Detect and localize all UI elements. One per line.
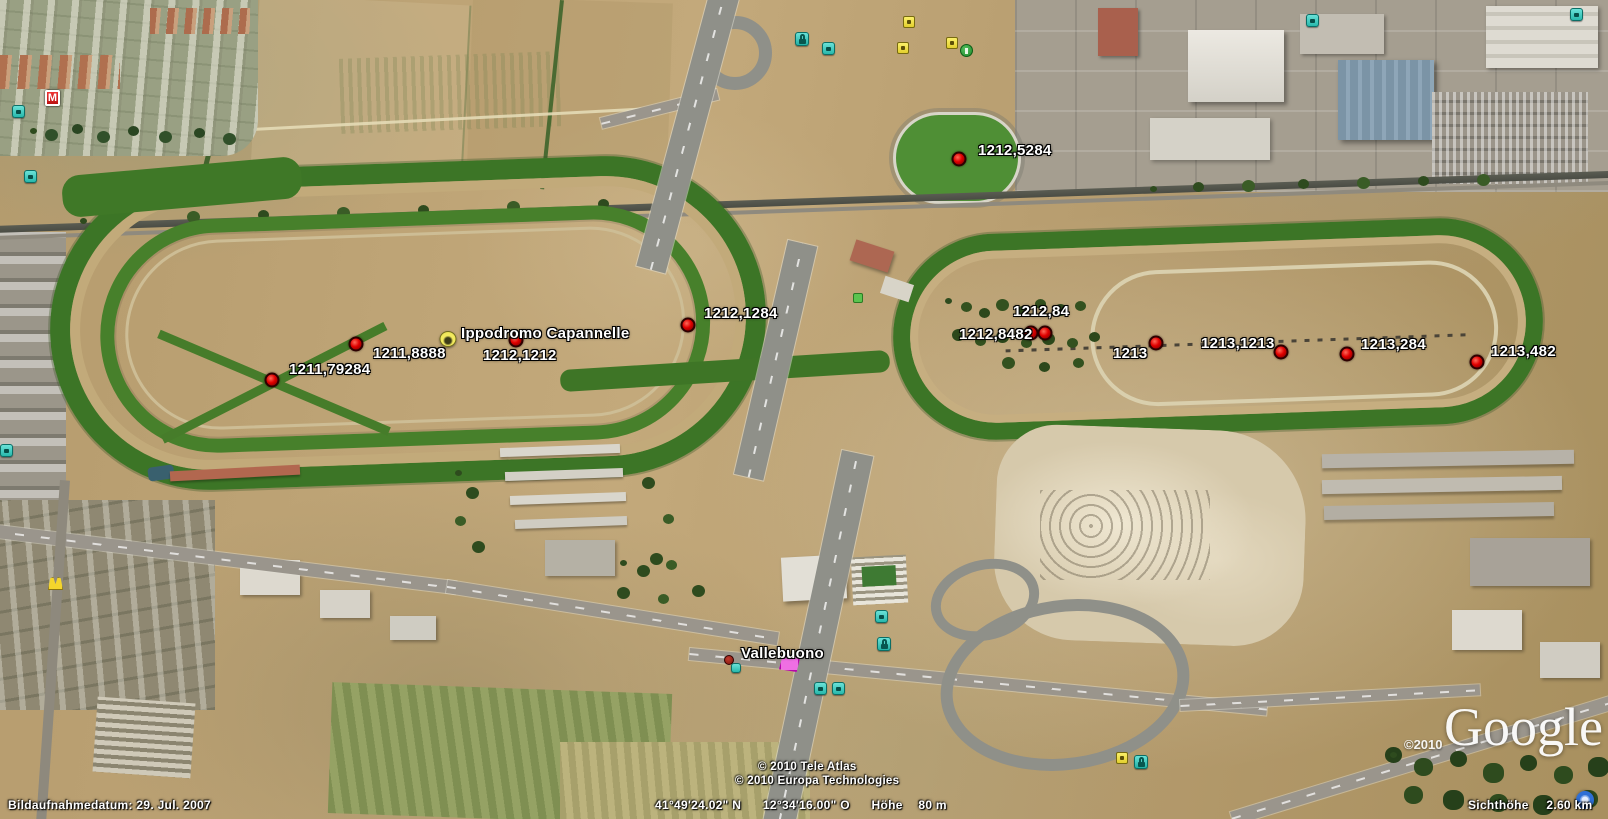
- google-logo: Google: [1444, 700, 1603, 754]
- status-eye-altitude-label: Sichthöhe: [1468, 798, 1529, 812]
- placemark-dot-icon[interactable]: [1340, 347, 1355, 362]
- placemark-dot-icon[interactable]: [724, 655, 734, 665]
- placemark-label: 1212,84: [1013, 304, 1069, 320]
- placemark-label: 1212,1284: [704, 306, 778, 322]
- status-eye-altitude: Sichthöhe 2.60 km: [1468, 798, 1592, 812]
- placemark-label: 1213,284: [1361, 337, 1426, 353]
- placemark-label: 1213,1213: [1201, 336, 1275, 352]
- placemark-label: 1212,5284: [978, 143, 1052, 159]
- copyright-europa-technologies: © 2010 Europa Technologies: [735, 775, 899, 787]
- placemark-dot-icon[interactable]: [952, 152, 967, 167]
- placemark-label: 1211,8888: [373, 346, 446, 362]
- status-latitude: 41°49'24.02" N: [655, 798, 741, 812]
- placemark-dot-icon[interactable]: [265, 373, 280, 388]
- placemark-label: Ippodromo Capannelle: [461, 326, 630, 342]
- placemark-dot-icon[interactable]: [1274, 345, 1289, 360]
- placemark-label: Vallebuono: [741, 646, 824, 662]
- status-elevation-value: 80 m: [918, 798, 947, 812]
- logo-copyright: ©2010: [1404, 737, 1443, 752]
- placemark-dot-icon[interactable]: [1038, 326, 1053, 341]
- placemark-dot-icon[interactable]: [349, 337, 364, 352]
- placemark-label: 1212,1212: [483, 348, 557, 364]
- status-eye-altitude-value: 2.60 km: [1546, 798, 1592, 812]
- google-earth-map-view[interactable]: 1212,52841212,12841211,88881211,79284121…: [0, 0, 1608, 819]
- placemark-layer: 1212,52841212,12841211,88881211,79284121…: [0, 0, 1608, 819]
- placemark-dot-icon[interactable]: [1470, 355, 1485, 370]
- status-elevation-label: Höhe: [872, 798, 903, 812]
- status-image-date: Bildaufnahmedatum: 29. Jul. 2007: [8, 798, 211, 812]
- placemark-label: 1213: [1113, 346, 1148, 362]
- status-longitude: 12°34'16.00" O: [763, 798, 850, 812]
- status-coordinates: 41°49'24.02" N 12°34'16.00" O Höhe 80 m: [655, 798, 947, 812]
- placemark-dot-icon[interactable]: [1149, 336, 1164, 351]
- placemark-dot-icon[interactable]: [681, 318, 696, 333]
- placemark-label: 1212,8482: [959, 327, 1033, 343]
- copyright-tele-atlas: © 2010 Tele Atlas: [758, 761, 857, 773]
- placemark-label: 1213,482: [1491, 344, 1556, 360]
- site-icon[interactable]: [440, 331, 457, 347]
- placemark-label: 1211,79284: [289, 362, 370, 378]
